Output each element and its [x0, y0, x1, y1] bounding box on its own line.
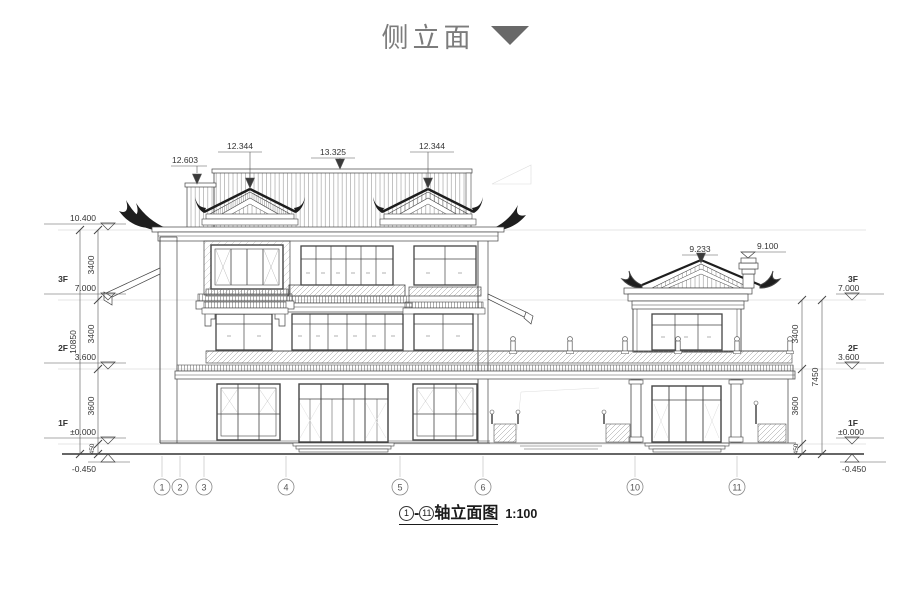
main-building	[104, 237, 533, 452]
dim-left-450: 450	[89, 443, 96, 454]
background-sketch-triangle	[492, 165, 531, 184]
axis-bubble-5: 5	[397, 483, 402, 493]
level-left-10400: 10.400	[70, 213, 96, 223]
dim-right-total: 7450	[810, 367, 820, 386]
dim-right-3400: 3400	[790, 324, 800, 343]
label-left-block-elev: 12.603	[172, 155, 198, 165]
window-1f-right	[413, 384, 477, 440]
level-right-7000: 7.000	[838, 283, 860, 293]
window-3f-right	[409, 246, 481, 296]
dim-right-450: 450	[793, 443, 800, 454]
caption-scale: 1:100	[505, 507, 537, 521]
drawing-caption: 1-11轴立面图1:100	[399, 499, 537, 523]
window-2f-rightbuilding	[652, 314, 722, 350]
label-right-dormer-elev: 12.344	[419, 141, 445, 151]
elevation-sheet: 侧立面	[0, 0, 910, 612]
corridor-roof-band	[175, 365, 795, 379]
axis-grid-bubbles: 1 2 3 4 5 6 10 11	[154, 456, 745, 495]
dim-left-3400a: 3400	[86, 255, 96, 274]
axis-bubble-10: 10	[630, 483, 640, 493]
axis-bubble-1: 1	[159, 483, 164, 493]
axis-bubble-3: 3	[201, 483, 206, 493]
dim-left-3400b: 3400	[86, 324, 96, 343]
floor-left-2f: 2F	[58, 343, 68, 353]
window-3f-center	[284, 246, 412, 312]
label-rightroof-ridge-elev: 9.233	[689, 244, 711, 254]
door-1f-center	[293, 384, 394, 452]
level-right-0000: ±0.000	[838, 427, 864, 437]
terrace-railing	[206, 351, 792, 363]
level-right-3600: 3.600	[838, 352, 860, 362]
window-2f-left	[216, 314, 272, 350]
window-2f-right	[403, 302, 485, 350]
dim-right-3600: 3600	[790, 396, 800, 415]
caption-axis-from: 1	[399, 506, 414, 521]
floor-left-3f: 3F	[58, 274, 68, 284]
label-left-dormer-elev: 12.344	[227, 141, 253, 151]
right-building-1f	[629, 380, 743, 452]
level-left-neg450: -0.450	[72, 464, 96, 474]
caption-title: 轴立面图	[434, 505, 498, 522]
dim-left-total: 10850	[68, 330, 78, 354]
axis-bubble-6: 6	[480, 483, 485, 493]
window-2f-center	[292, 314, 403, 350]
level-left-0000: ±0.000	[70, 427, 96, 437]
axis-bubble-2: 2	[177, 483, 182, 493]
left-wing-canopy	[104, 268, 160, 305]
level-right-neg450: -0.450	[842, 464, 866, 474]
caption-underlined: 1-11轴立面图	[399, 505, 498, 525]
window-3f-left	[204, 241, 290, 296]
right-side-canopy	[488, 294, 533, 324]
level-left-7000: 7.000	[75, 283, 97, 293]
dim-left-3600: 3600	[86, 396, 96, 415]
left-2f-canopy	[202, 302, 288, 314]
label-ridge-elev: 13.325	[320, 147, 346, 157]
axis-bubble-11: 11	[732, 483, 741, 493]
caption-axis-to: 11	[419, 506, 434, 521]
axis-bubble-4: 4	[283, 483, 288, 493]
floor-left-1f: 1F	[58, 418, 68, 428]
window-1f-left	[217, 384, 280, 440]
label-chimney-elev: 9.100	[757, 241, 779, 251]
